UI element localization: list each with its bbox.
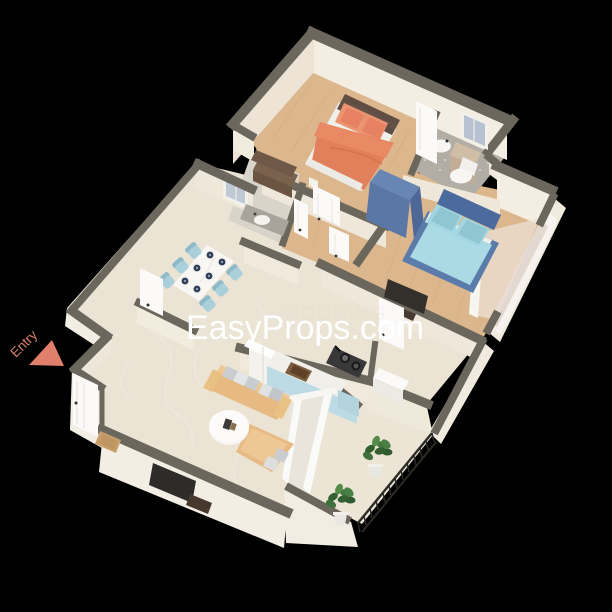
svg-text:EasyProps.com: EasyProps.com (186, 309, 424, 347)
